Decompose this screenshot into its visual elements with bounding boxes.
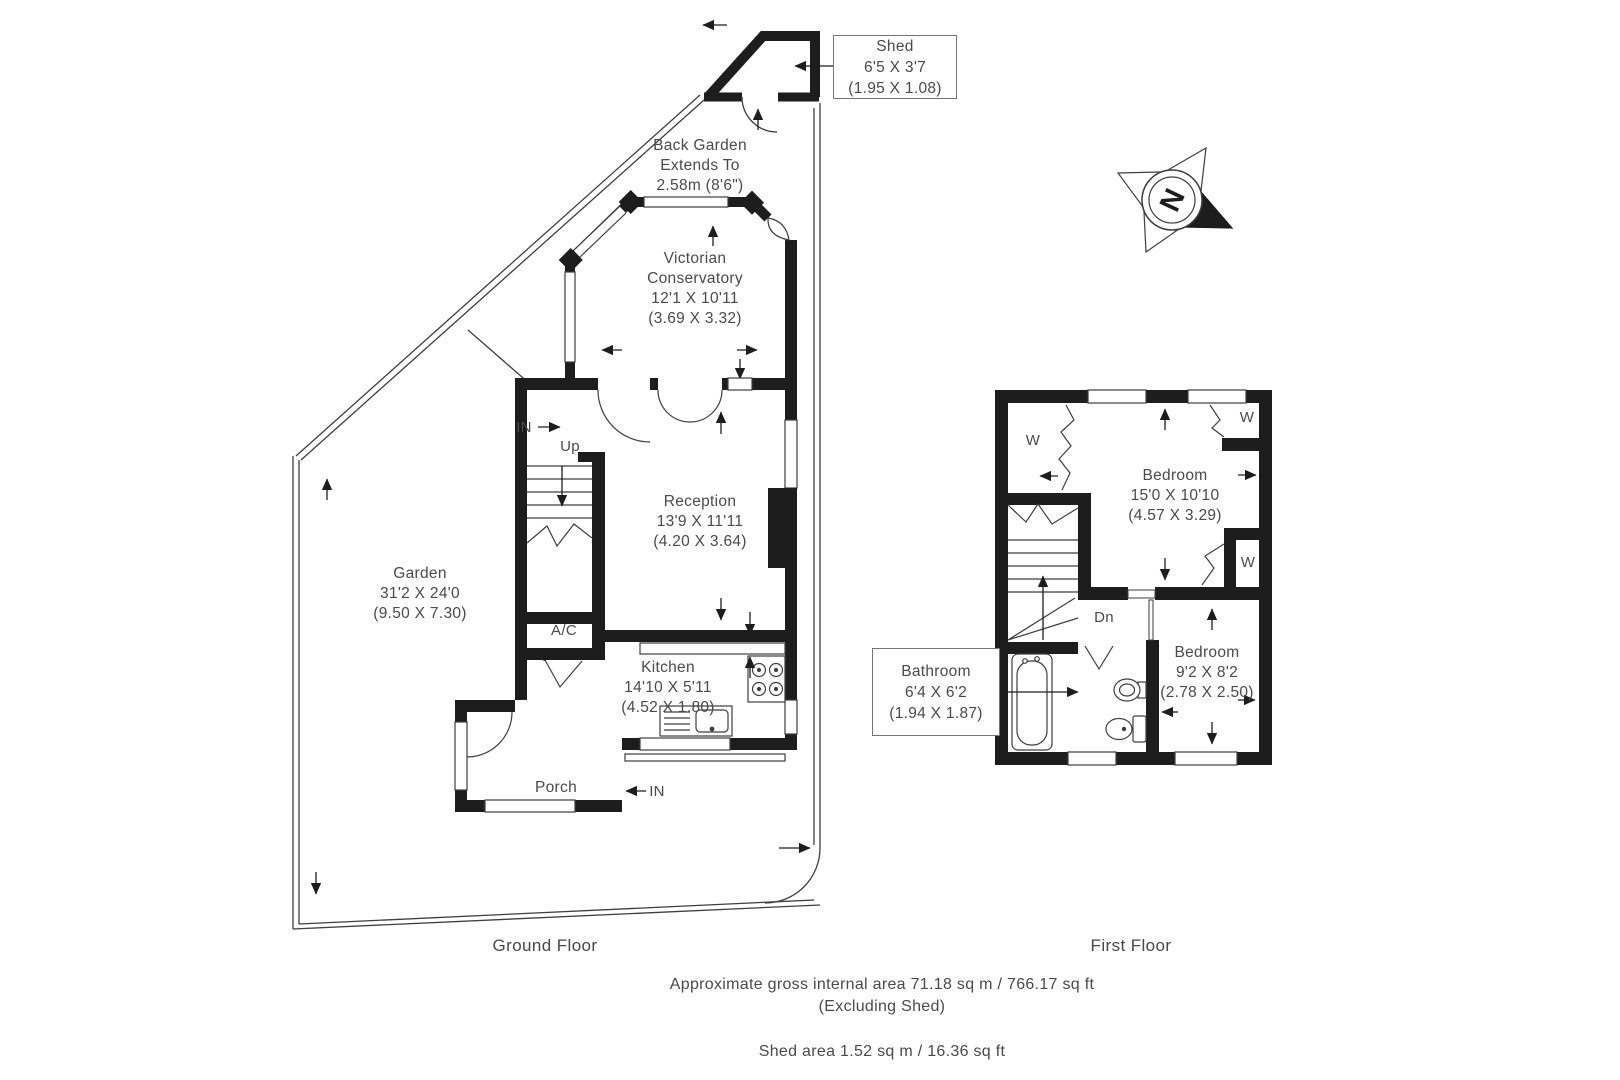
bedroom2-label: Bedroom 9'2 X 8'2 (2.78 X 2.50) xyxy=(1160,643,1254,703)
footer-area-line: Approximate gross internal area 71.18 sq… xyxy=(670,976,1094,994)
wardrobe-label-2: W xyxy=(1240,408,1254,428)
footer-area-note: (Excluding Shed) xyxy=(819,998,946,1016)
porch-label: Porch xyxy=(535,778,577,798)
chimney-breast xyxy=(768,488,797,568)
garden-gate-arc xyxy=(765,848,820,903)
closet-wall xyxy=(1008,493,1078,505)
house-top-wall xyxy=(515,378,797,390)
rear-window xyxy=(728,378,752,390)
front-sill xyxy=(625,754,785,761)
bathtub xyxy=(1012,654,1052,750)
conservatory-right-wall xyxy=(785,240,797,383)
compass-rose: N xyxy=(1118,148,1232,252)
bedroom2-door-leaf xyxy=(1149,600,1153,640)
kitchen-window-side xyxy=(785,700,797,734)
floorplan-drawing: N xyxy=(0,0,1620,1080)
shed-walls xyxy=(704,36,819,132)
entrance-in-label: IN xyxy=(516,418,532,438)
back-garden-label: Back Garden Extends To 2.58m (8'6") xyxy=(653,136,747,196)
garden-divider-line xyxy=(468,330,530,384)
bedroom2-door-track xyxy=(1128,590,1155,598)
kitchen-label: Kitchen 14'10 X 5'11 (4.52 X 1.80) xyxy=(621,658,715,718)
hob xyxy=(748,656,785,702)
wardrobe-label-1: W xyxy=(1026,431,1040,451)
stairs-up-label: Up xyxy=(560,437,580,457)
reception-label: Reception 13'9 X 11'11 (4.20 X 3.64) xyxy=(653,492,747,552)
bedroom1-label: Bedroom 15'0 X 10'10 (4.57 X 3.29) xyxy=(1128,466,1222,526)
shed-label-box: Shed 6'5 X 3'7 (1.95 X 1.08) xyxy=(833,35,957,99)
first-floor-title: First Floor xyxy=(1091,936,1172,956)
conservatory-label: Victorian Conservatory 12'1 X 10'11 (3.6… xyxy=(647,249,743,329)
kitchen-counter xyxy=(640,643,785,654)
ac-label: A/C xyxy=(551,621,577,641)
footer-shed-area-line: Shed area 1.52 sq m / 16.36 sq ft xyxy=(759,1043,1006,1061)
porch-in-label: IN xyxy=(649,782,665,802)
bathroom-label-box: Bathroom 6'4 X 6'2 (1.94 X 1.87) xyxy=(872,648,1000,736)
shed-door-arc xyxy=(742,97,777,132)
reception-window xyxy=(785,420,797,488)
wardrobe-label-3: W xyxy=(1241,553,1255,573)
kitchen-window-front xyxy=(640,738,730,750)
porch-window-left xyxy=(455,722,467,790)
toilet xyxy=(1106,716,1146,742)
ground-floor-title: Ground Floor xyxy=(493,936,598,956)
basin xyxy=(1114,679,1146,701)
garden-label: Garden 31'2 X 24'0 (9.50 X 7.30) xyxy=(373,564,467,624)
stairs-dn-label: Dn xyxy=(1094,608,1114,628)
floorplan-canvas: N Back Garden Extends To 2.58m (8'6") Sh… xyxy=(0,0,1620,1080)
porch-window-front xyxy=(485,800,575,812)
